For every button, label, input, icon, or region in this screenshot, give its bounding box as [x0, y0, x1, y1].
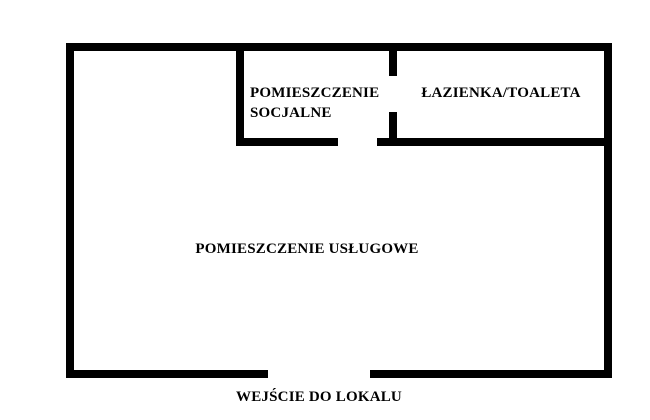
door-bathroom [389, 76, 397, 112]
label-social-room: POMIESZCZENIE SOCJALNE [250, 83, 390, 123]
label-service-room: POMIESZCZENIE USŁUGOWE [97, 239, 517, 259]
floor-plan: POMIESZCZENIE SOCJALNE ŁAZIENKA/TOALETA … [0, 0, 650, 420]
wall-outer-bottom-left [66, 370, 268, 378]
wall-outer-bottom-right [370, 370, 612, 378]
wall-outer-right [604, 43, 612, 378]
wall-outer-left [66, 43, 74, 378]
entrance-opening [268, 370, 370, 378]
wall-social-bottom [236, 138, 338, 146]
label-entrance: WEJŚCIE DO LOKALU [219, 387, 419, 407]
wall-outer-top [66, 43, 612, 51]
wall-social-left [236, 43, 244, 146]
wall-bathroom-bottom [377, 138, 612, 146]
wall-social-bathroom-upper [389, 43, 397, 76]
label-bathroom: ŁAZIENKA/TOALETA [398, 83, 604, 103]
wall-social-bathroom-lower [389, 112, 397, 146]
door-social-room [338, 138, 377, 146]
